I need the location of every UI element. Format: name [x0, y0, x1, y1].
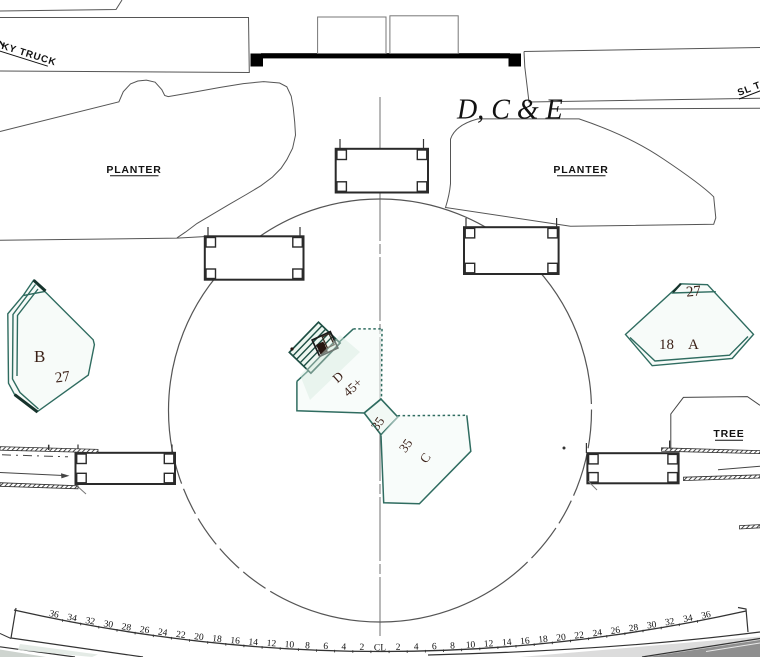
svg-text:10: 10 — [466, 640, 476, 651]
svg-text:30: 30 — [646, 620, 657, 631]
svg-text:18: 18 — [538, 635, 549, 646]
svg-text:24: 24 — [157, 628, 168, 639]
svg-text:22: 22 — [175, 630, 186, 641]
svg-text:6: 6 — [432, 642, 437, 652]
svg-text:12: 12 — [266, 639, 276, 650]
svg-text:PLANTER: PLANTER — [553, 164, 608, 176]
svg-text:36: 36 — [700, 610, 712, 622]
svg-text:D, C & E: D, C & E — [456, 95, 563, 126]
svg-text:16: 16 — [520, 636, 531, 647]
svg-text:26: 26 — [139, 625, 150, 636]
svg-text:20: 20 — [556, 633, 567, 644]
svg-text:PLANTER: PLANTER — [106, 164, 161, 176]
svg-text:18: 18 — [212, 634, 223, 645]
svg-text:14: 14 — [248, 638, 259, 649]
svg-text:CL: CL — [374, 643, 386, 653]
svg-text:B: B — [34, 347, 45, 366]
svg-text:8: 8 — [305, 641, 310, 651]
svg-text:KY TRUCK: KY TRUCK — [0, 41, 58, 69]
svg-text:4: 4 — [414, 643, 419, 653]
svg-text:24: 24 — [592, 628, 603, 639]
svg-text:18: 18 — [659, 337, 674, 353]
svg-text:20: 20 — [194, 632, 205, 643]
svg-text:TREE: TREE — [713, 428, 744, 440]
svg-text:28: 28 — [628, 623, 639, 634]
svg-text:10: 10 — [284, 640, 294, 651]
svg-text:8: 8 — [450, 641, 455, 651]
svg-text:27: 27 — [54, 369, 72, 387]
svg-text:22: 22 — [574, 631, 585, 642]
svg-text:2: 2 — [396, 643, 401, 653]
svg-text:34: 34 — [682, 613, 693, 625]
svg-text:30: 30 — [103, 619, 114, 630]
svg-text:16: 16 — [230, 636, 241, 647]
svg-text:32: 32 — [664, 617, 675, 629]
svg-text:32: 32 — [85, 616, 96, 628]
svg-text:4: 4 — [341, 642, 346, 652]
svg-text:6: 6 — [323, 642, 328, 652]
svg-text:12: 12 — [484, 639, 494, 650]
svg-text:14: 14 — [502, 638, 512, 649]
svg-text:28: 28 — [121, 622, 132, 633]
svg-text:27: 27 — [685, 283, 702, 301]
svg-text:2: 2 — [359, 643, 364, 653]
svg-text:A: A — [688, 337, 699, 353]
svg-text:26: 26 — [610, 626, 621, 637]
